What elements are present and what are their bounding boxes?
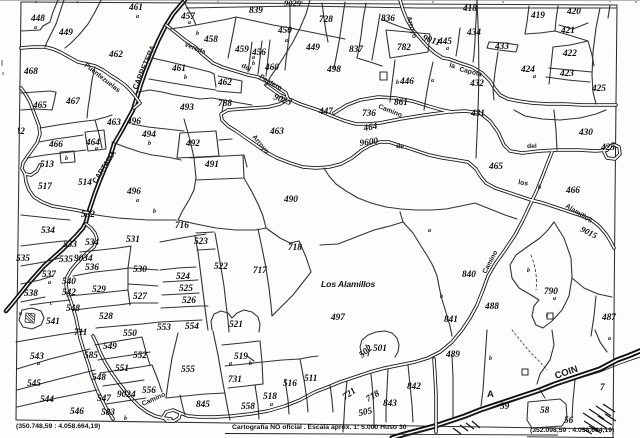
- svg-text:536: 536: [85, 263, 99, 273]
- svg-text:A: A: [487, 389, 494, 400]
- svg-text:498: 498: [326, 65, 341, 75]
- svg-text:487: 487: [601, 313, 616, 323]
- svg-text:(352.098,59 : 4.058.664,19): (352.098,59 : 4.058.664,19): [530, 427, 614, 434]
- svg-text:a: a: [136, 14, 139, 20]
- svg-text:b: b: [440, 294, 443, 300]
- svg-text:837: 837: [349, 45, 363, 55]
- svg-text:526: 526: [182, 296, 196, 306]
- svg-text:59: 59: [500, 402, 510, 412]
- svg-text:459: 459: [234, 45, 249, 55]
- svg-text:585: 585: [84, 351, 98, 361]
- svg-text:a: a: [428, 228, 431, 234]
- svg-text:430: 430: [578, 128, 593, 138]
- svg-text:466: 466: [48, 140, 63, 150]
- svg-text:530: 530: [133, 265, 147, 275]
- svg-text:501: 501: [373, 344, 387, 354]
- svg-text:a: a: [34, 25, 37, 31]
- svg-text:488: 488: [484, 302, 499, 312]
- svg-text:548: 548: [92, 373, 106, 383]
- svg-text:528: 528: [99, 312, 113, 322]
- svg-text:449: 449: [305, 43, 320, 53]
- svg-text:728: 728: [319, 15, 333, 25]
- svg-text:535: 535: [59, 255, 73, 265]
- svg-text:a: a: [431, 78, 434, 84]
- svg-text:551: 551: [115, 364, 129, 374]
- svg-text:431: 431: [470, 109, 485, 119]
- svg-text:538: 538: [24, 289, 38, 299]
- svg-text:541: 541: [46, 317, 60, 327]
- svg-text:736: 736: [362, 109, 376, 119]
- svg-text:525: 525: [179, 284, 193, 294]
- svg-text:731: 731: [228, 375, 242, 385]
- svg-text:b: b: [252, 61, 255, 67]
- svg-text:b: b: [396, 80, 399, 86]
- svg-text:464: 464: [85, 138, 100, 148]
- svg-text:492: 492: [185, 139, 200, 149]
- svg-text:535: 535: [16, 254, 30, 264]
- svg-text:b: b: [527, 268, 530, 274]
- svg-text:496: 496: [126, 117, 141, 127]
- svg-text:716: 716: [175, 221, 189, 231]
- svg-text:841: 841: [444, 315, 458, 325]
- svg-text:540: 540: [62, 277, 76, 287]
- svg-text:550: 550: [123, 329, 137, 339]
- svg-text:del: del: [527, 143, 537, 150]
- svg-text:521: 521: [229, 320, 243, 330]
- svg-text:Cartografía NO oficial . Escal: Cartografía NO oficial . Escala aprox. 1…: [232, 424, 407, 431]
- svg-text:c: c: [546, 313, 549, 319]
- svg-text:843: 843: [383, 399, 397, 409]
- svg-text:839: 839: [249, 6, 263, 16]
- svg-text:519: 519: [234, 352, 248, 362]
- svg-text:549: 549: [103, 342, 117, 352]
- svg-text:493: 493: [179, 103, 194, 113]
- svg-text:845: 845: [196, 400, 210, 410]
- svg-text:Los Alamillos: Los Alamillos: [321, 279, 376, 289]
- svg-text:490: 490: [283, 195, 298, 205]
- svg-text:466: 466: [565, 186, 580, 196]
- svg-text:554: 554: [185, 322, 199, 332]
- svg-text:420: 420: [566, 7, 581, 17]
- svg-text:b: b: [489, 356, 492, 362]
- svg-text:a: a: [19, 311, 22, 317]
- svg-text:516: 516: [283, 379, 297, 389]
- svg-text:545: 545: [27, 379, 41, 389]
- svg-text:513: 513: [40, 160, 54, 170]
- svg-text:527: 527: [133, 292, 147, 302]
- svg-text:463: 463: [106, 118, 121, 128]
- svg-text:(350.748,59 : 4.058.664,19): (350.748,59 : 4.058.664,19): [16, 423, 100, 430]
- svg-text:419: 419: [530, 11, 545, 21]
- svg-text:b: b: [196, 31, 199, 37]
- svg-text:462: 462: [217, 78, 232, 88]
- svg-text:465: 465: [32, 101, 47, 111]
- svg-text:547: 547: [97, 394, 111, 404]
- svg-text:a: a: [285, 38, 288, 44]
- svg-text:558: 558: [241, 402, 255, 412]
- svg-text:421: 421: [560, 26, 575, 36]
- svg-text:a: a: [136, 198, 139, 204]
- svg-text:468: 468: [23, 67, 38, 77]
- svg-text:546: 546: [70, 407, 84, 417]
- svg-text:447: 447: [318, 107, 333, 117]
- svg-text:517: 517: [38, 182, 52, 192]
- svg-text:b: b: [153, 209, 156, 215]
- svg-text:a: a: [48, 280, 51, 286]
- svg-text:524: 524: [176, 272, 190, 282]
- svg-text:449: 449: [58, 28, 73, 38]
- svg-text:a: a: [188, 20, 191, 26]
- svg-text:b: b: [538, 185, 541, 191]
- svg-text:494: 494: [141, 130, 156, 140]
- svg-text:790: 790: [544, 287, 558, 297]
- svg-text:a: a: [270, 402, 273, 408]
- svg-text:553: 553: [157, 323, 171, 333]
- svg-text:522: 522: [214, 262, 228, 272]
- svg-text:a: a: [229, 361, 232, 367]
- svg-text:460: 460: [264, 63, 279, 73]
- svg-text:842: 842: [407, 382, 421, 392]
- svg-text:544: 544: [40, 395, 54, 405]
- svg-text:788: 788: [218, 99, 232, 109]
- svg-text:465: 465: [488, 162, 503, 172]
- svg-text:523: 523: [194, 237, 208, 247]
- svg-text:537: 537: [42, 270, 56, 280]
- svg-text:533: 533: [63, 240, 77, 250]
- svg-text:463: 463: [269, 127, 284, 137]
- svg-text:861: 861: [394, 98, 408, 108]
- svg-text:446: 446: [399, 77, 414, 87]
- svg-text:534: 534: [85, 238, 99, 248]
- svg-text:555: 555: [181, 365, 195, 375]
- svg-text:7: 7: [600, 383, 605, 393]
- svg-text:418: 418: [462, 4, 477, 14]
- svg-text:425: 425: [591, 84, 606, 94]
- svg-text:529: 529: [92, 285, 106, 295]
- svg-text:542: 542: [62, 288, 76, 298]
- svg-text:458: 458: [203, 35, 218, 45]
- svg-text:496: 496: [126, 187, 141, 197]
- svg-text:711: 711: [74, 328, 87, 338]
- svg-text:518: 518: [263, 392, 277, 402]
- svg-text:a: a: [37, 361, 40, 367]
- svg-text:462: 462: [108, 50, 123, 60]
- svg-text:9034: 9034: [74, 254, 93, 264]
- svg-text:a: a: [533, 74, 536, 80]
- svg-text:717: 717: [253, 266, 267, 276]
- svg-text:461: 461: [171, 64, 186, 74]
- svg-text:422: 422: [562, 49, 577, 59]
- svg-text:548: 548: [66, 304, 80, 314]
- svg-text:b: b: [184, 75, 187, 81]
- svg-text:461: 461: [128, 3, 143, 13]
- svg-text:423: 423: [559, 69, 574, 79]
- svg-text:433: 433: [494, 42, 509, 52]
- svg-text:718: 718: [288, 243, 302, 253]
- svg-text:a: a: [553, 296, 556, 302]
- svg-text:511: 511: [304, 374, 317, 384]
- svg-text:c: c: [50, 301, 53, 307]
- svg-text:840: 840: [462, 270, 476, 280]
- svg-text:467: 467: [65, 97, 80, 107]
- svg-text:a: a: [95, 146, 98, 152]
- svg-text:425: 425: [600, 143, 615, 153]
- svg-text:de: de: [396, 143, 405, 151]
- svg-text:532: 532: [81, 210, 95, 220]
- svg-text:432: 432: [469, 79, 484, 89]
- svg-text:434: 434: [466, 28, 481, 38]
- svg-text:b: b: [124, 416, 127, 422]
- svg-text:b: b: [148, 141, 151, 147]
- svg-text:56: 56: [564, 416, 574, 426]
- svg-text:9024: 9024: [117, 390, 136, 400]
- svg-text:489: 489: [445, 350, 460, 360]
- svg-text:a: a: [608, 336, 611, 342]
- svg-text:782: 782: [397, 43, 411, 53]
- svg-text:450: 450: [277, 26, 292, 36]
- svg-text:583: 583: [101, 408, 115, 418]
- svg-text:58: 58: [540, 406, 550, 416]
- svg-text:b: b: [249, 361, 252, 367]
- svg-text:534: 534: [41, 226, 55, 236]
- svg-text:491: 491: [204, 160, 219, 170]
- svg-text:836: 836: [381, 14, 395, 24]
- svg-text:a: a: [446, 46, 449, 52]
- svg-text:497: 497: [330, 313, 345, 323]
- svg-text:448: 448: [30, 14, 45, 24]
- svg-text:b: b: [65, 156, 68, 162]
- svg-text:9029: 9029: [284, 0, 302, 8]
- svg-text:552: 552: [133, 351, 147, 361]
- svg-text:531: 531: [126, 235, 140, 245]
